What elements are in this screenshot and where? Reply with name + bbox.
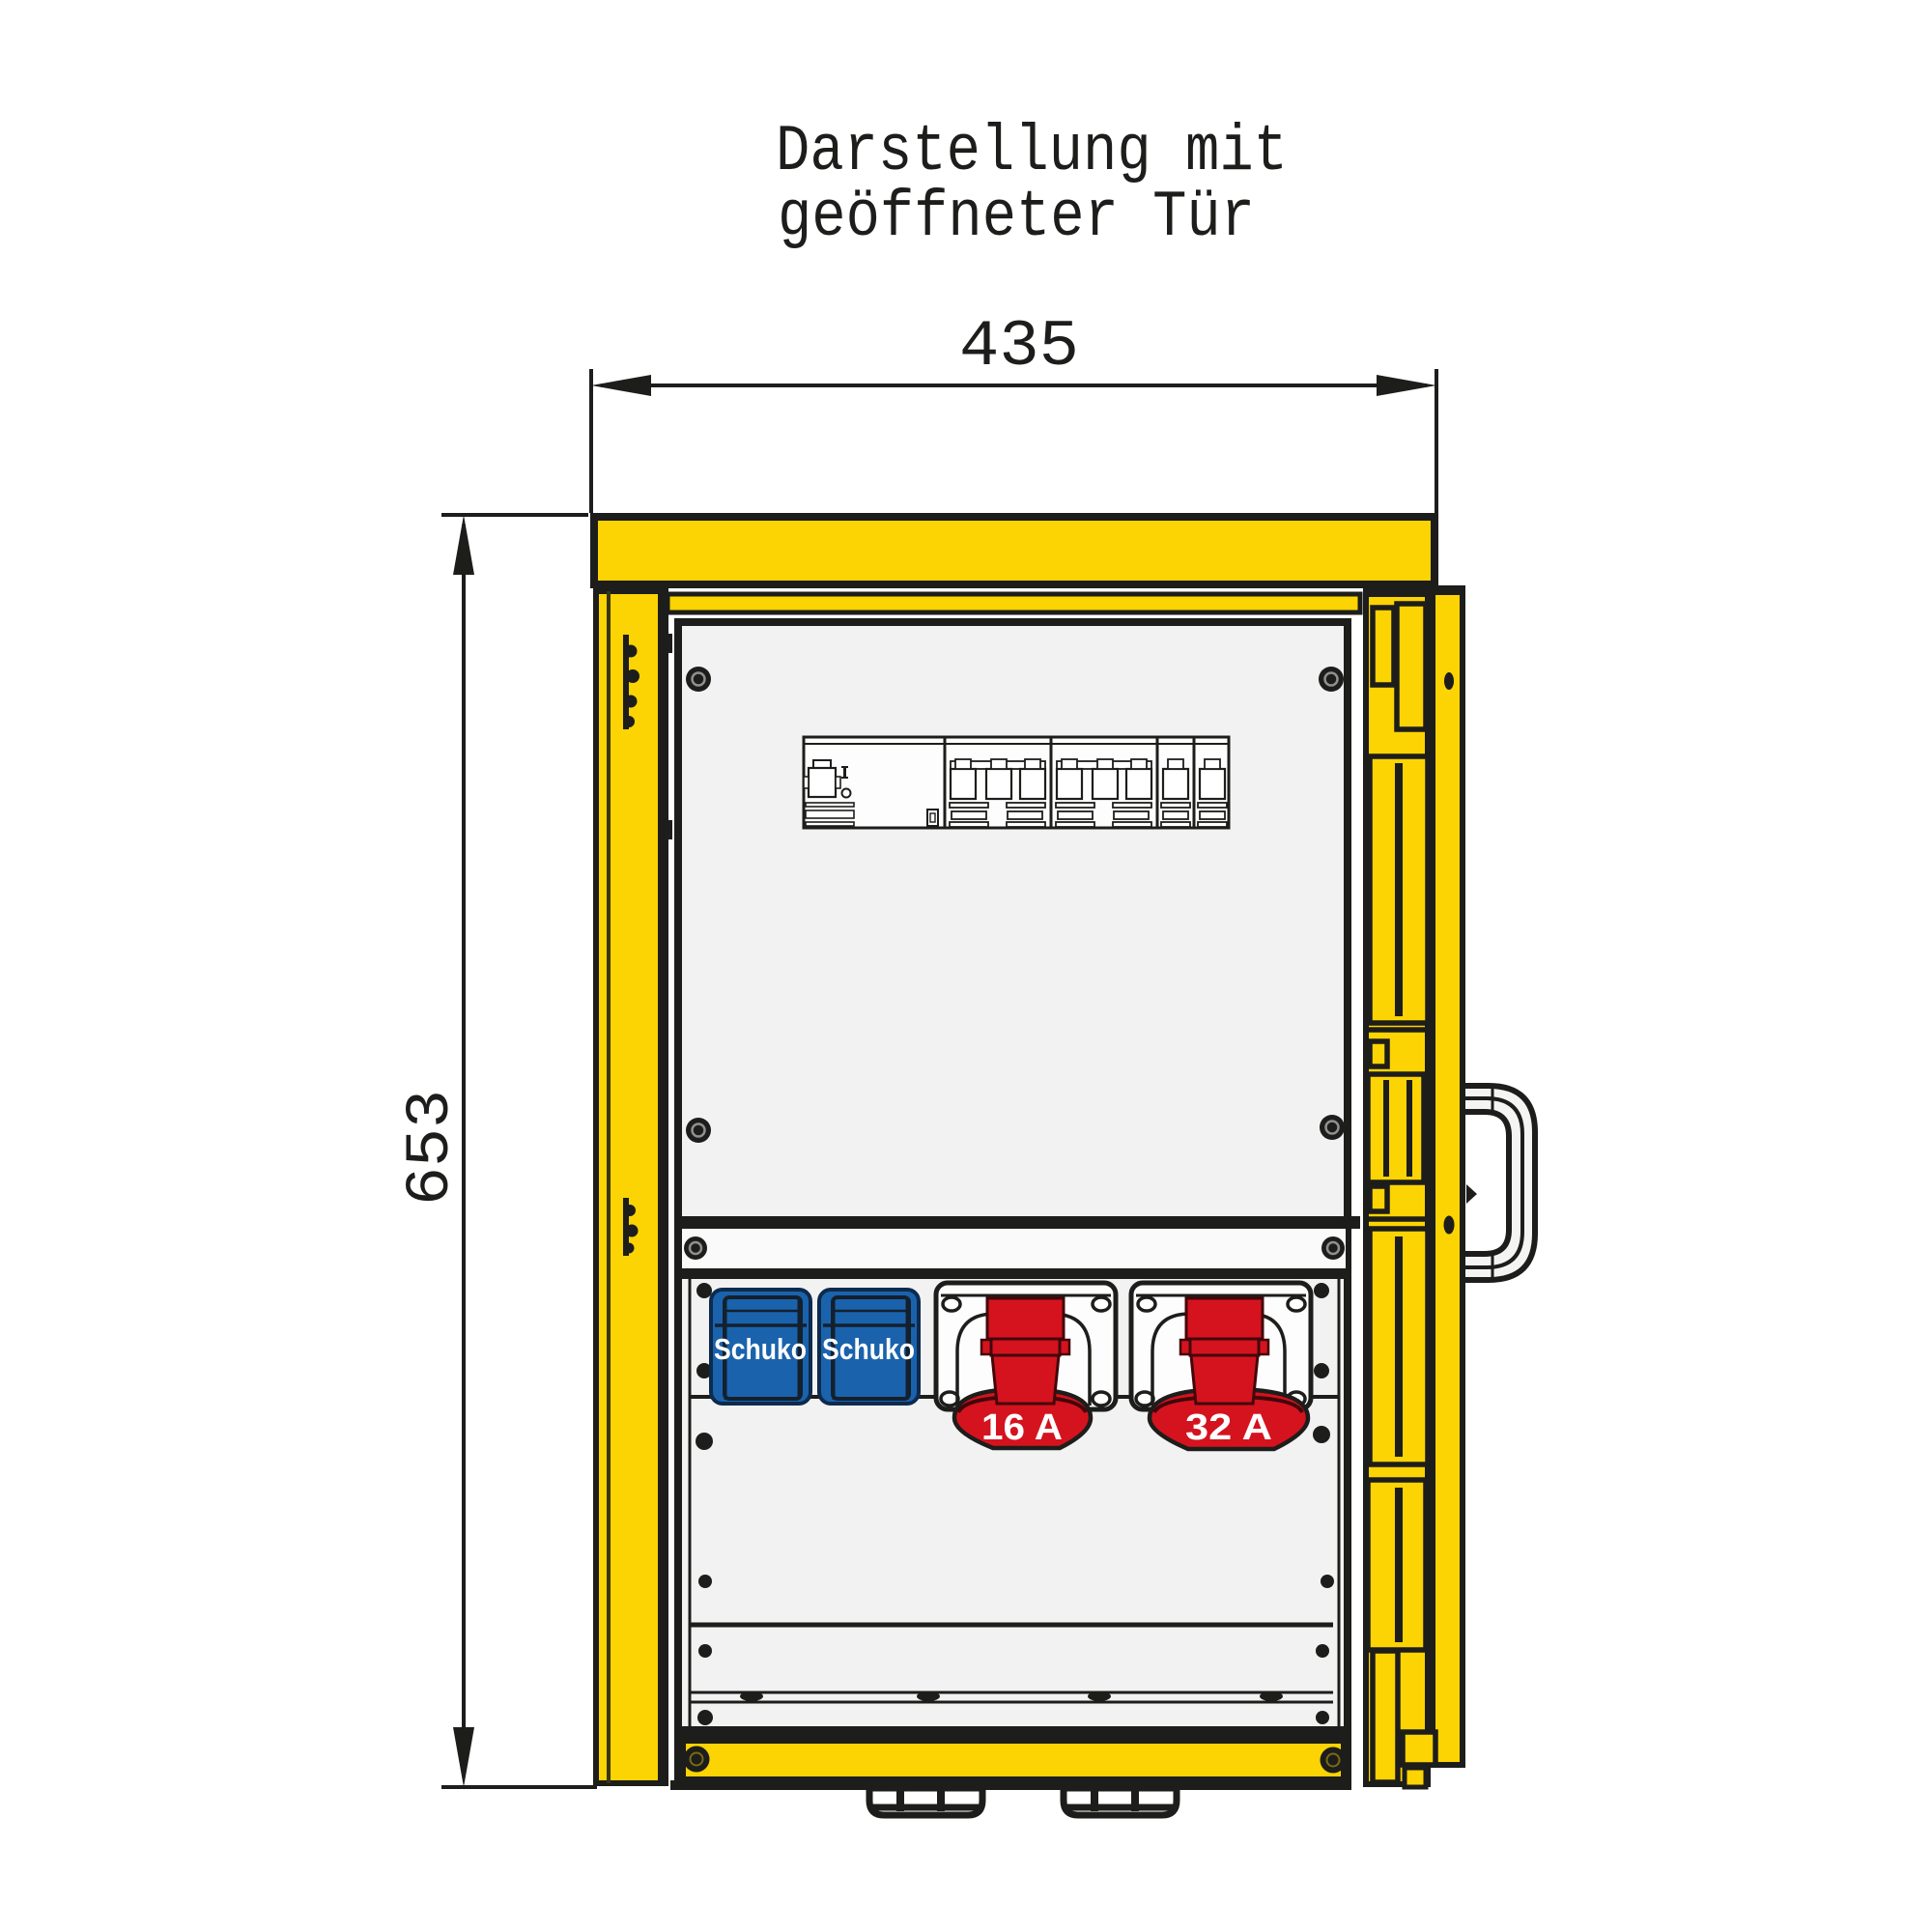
svg-text:653: 653 bbox=[397, 1090, 467, 1206]
svg-text:435: 435 bbox=[959, 310, 1079, 384]
svg-text:Schuko: Schuko bbox=[822, 1332, 915, 1366]
svg-text:16 A: 16 A bbox=[981, 1407, 1063, 1448]
svg-text:geöffneter Tür: geöffneter Tür bbox=[778, 181, 1255, 255]
svg-text:Darstellung mit: Darstellung mit bbox=[776, 115, 1288, 189]
svg-text:Schuko: Schuko bbox=[714, 1332, 807, 1366]
svg-text:32 A: 32 A bbox=[1185, 1407, 1272, 1448]
